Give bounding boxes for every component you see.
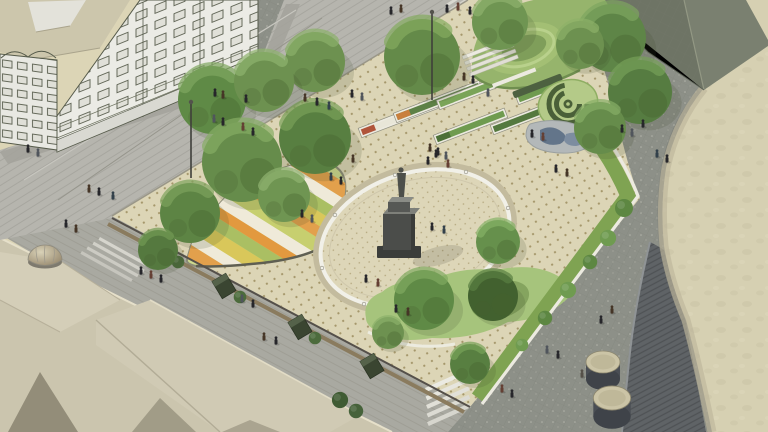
bush bbox=[516, 339, 529, 352]
bush bbox=[349, 404, 363, 418]
oval-post bbox=[506, 206, 510, 210]
bush bbox=[583, 255, 597, 269]
bush bbox=[234, 291, 247, 304]
bush bbox=[615, 199, 633, 217]
bush bbox=[309, 332, 322, 345]
bush bbox=[600, 230, 616, 246]
cylinder-kiosk bbox=[586, 351, 620, 390]
plaza-rendering: Aerial architectural rendering of a publ… bbox=[0, 0, 768, 432]
facade-left bbox=[0, 51, 57, 150]
cylinder-kiosk bbox=[593, 386, 630, 429]
bush bbox=[332, 392, 348, 408]
oval-post bbox=[320, 266, 324, 270]
oval-post bbox=[464, 170, 468, 174]
oval-post bbox=[333, 213, 337, 217]
oval-post bbox=[362, 302, 366, 306]
bush bbox=[560, 282, 576, 298]
oval-post bbox=[393, 173, 397, 177]
bush bbox=[538, 311, 552, 325]
rendering-canvas: Aerial architectural rendering of a publ… bbox=[0, 0, 768, 432]
